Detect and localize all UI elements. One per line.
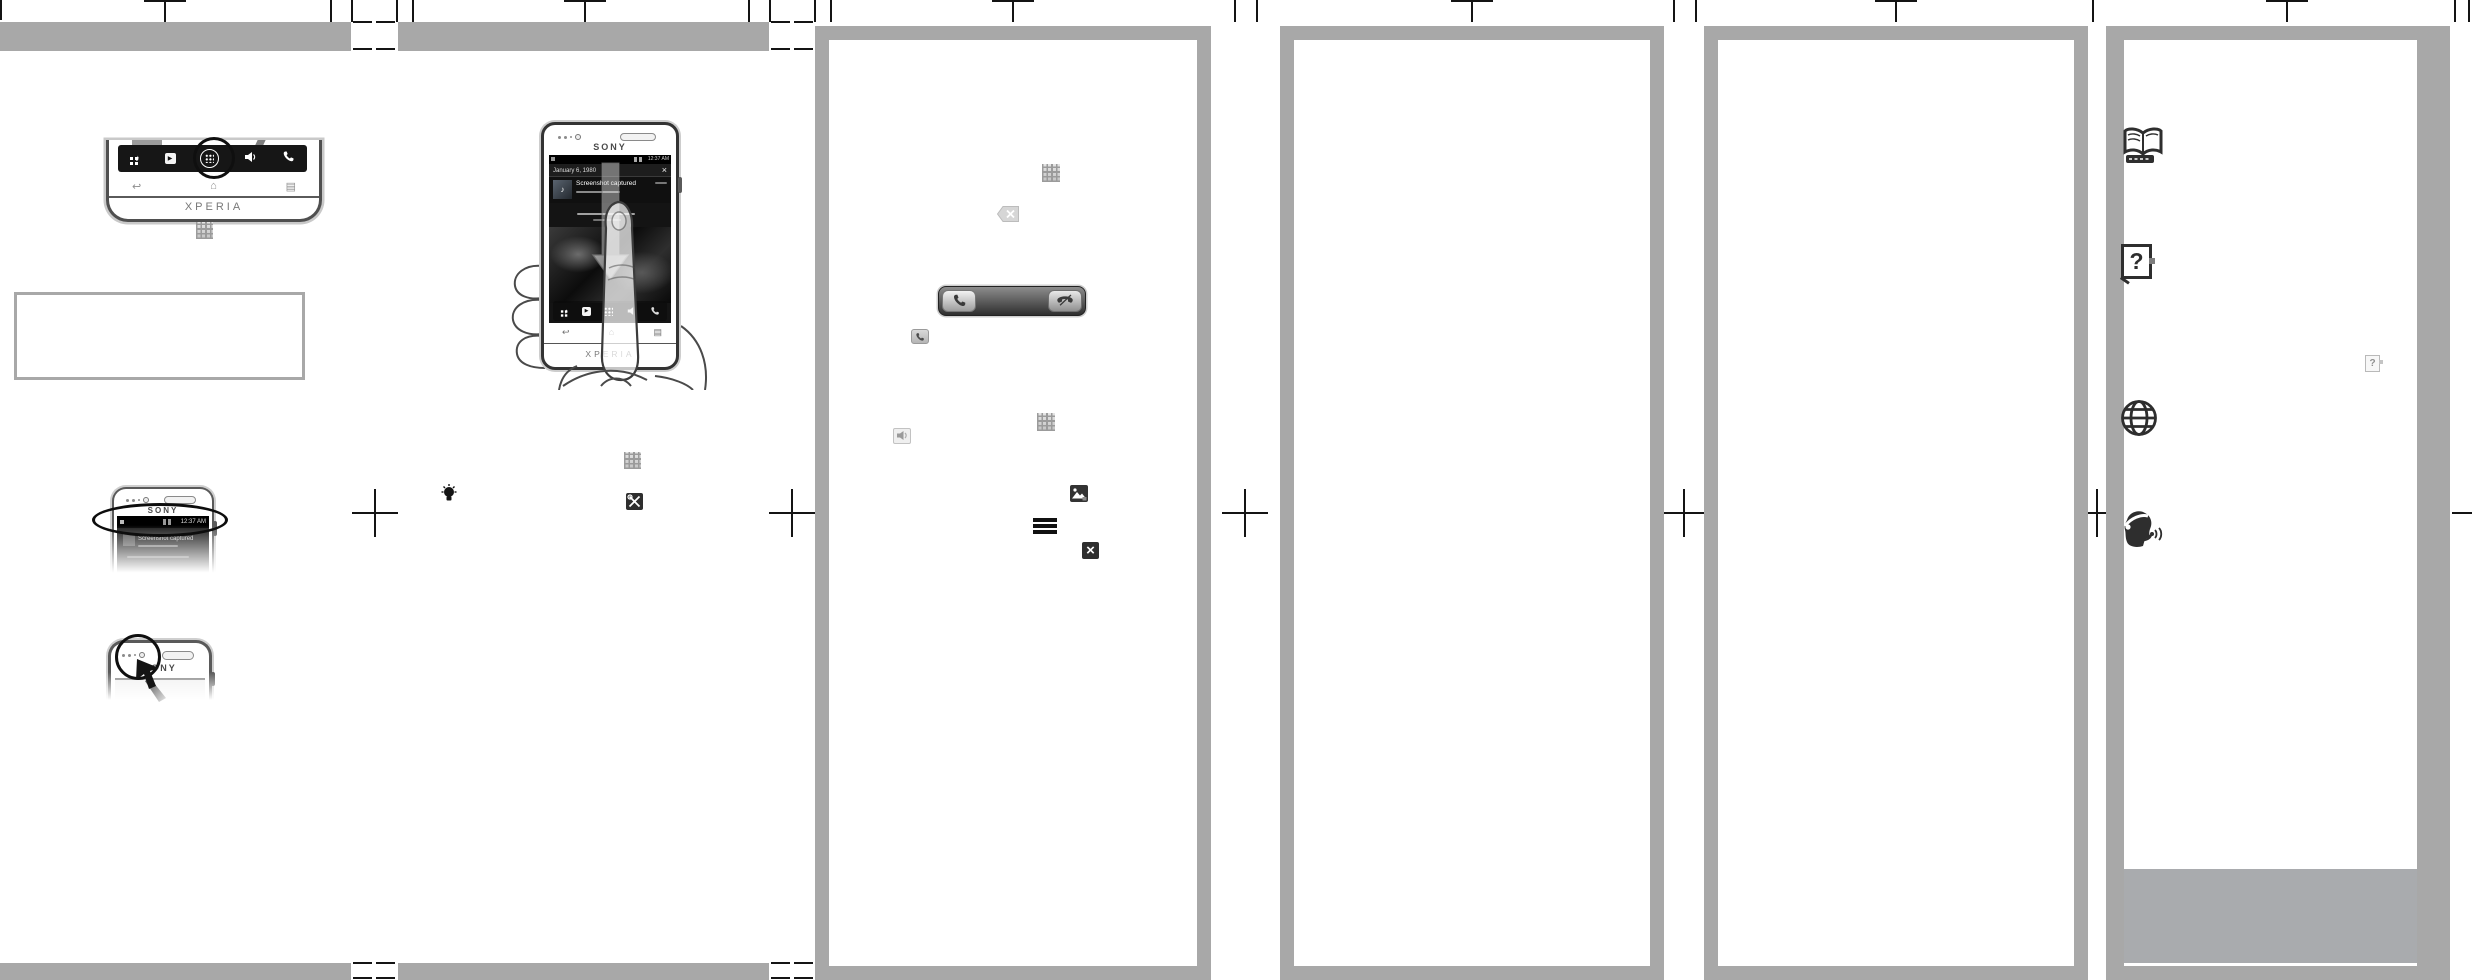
panel1-bottom-bar — [0, 963, 351, 980]
app-grid-icon — [1042, 164, 1060, 182]
open-book-icon — [2122, 126, 2164, 166]
lightbulb-icon — [440, 484, 458, 504]
app-grid-icon — [624, 452, 641, 469]
panel-3 — [815, 26, 1211, 980]
back-key-icon: ↩ — [132, 180, 141, 193]
panel2-top-bar — [398, 22, 769, 51]
speaker-icon — [893, 428, 911, 444]
keyboard-dismiss-icon — [997, 206, 1019, 222]
dragging-finger — [505, 118, 710, 390]
status-bar-highlight-ellipse — [92, 503, 228, 537]
phone-statusbar-illustration: SONY 12:37 AM Screenshot captured — [104, 487, 256, 579]
phone-camera-illustration: SONY — [108, 638, 224, 704]
phone-dock-icon — [282, 150, 295, 168]
panel-5 — [1704, 26, 2088, 980]
panel-4 — [1280, 26, 1664, 980]
support-call-icon — [2117, 506, 2163, 552]
speaker-dock-icon — [244, 150, 257, 168]
menu-key-icon: ▤ — [286, 180, 296, 193]
app-grid-icon — [1037, 413, 1055, 431]
home-key-icon: ⌂ — [210, 180, 217, 193]
answer-call-icon — [942, 290, 976, 312]
cursor-arrow-icon — [128, 652, 176, 702]
note-box — [14, 292, 305, 380]
gallery-icon — [1070, 485, 1088, 502]
menu-icon — [1033, 518, 1057, 535]
panel2-bottom-bar — [398, 963, 769, 980]
globe-icon — [2118, 397, 2160, 439]
help-box-icon: ? — [2121, 244, 2152, 279]
panel6-footer-block — [2124, 869, 2417, 963]
reject-call-icon — [1048, 290, 1082, 312]
print-spread-canvas: ♪ ▶ ↩ ⌂ ▤ XPERIA — [0, 0, 2472, 980]
highlight-circle — [193, 137, 235, 179]
app-grid-icon — [196, 222, 213, 239]
panel-6 — [2106, 26, 2450, 980]
xperia-chin-label: XPERIA — [106, 201, 322, 213]
store-icon: ▶ — [165, 153, 176, 164]
media-apps-icon: ♪ — [130, 154, 140, 163]
incoming-call-slider — [938, 286, 1086, 316]
phone-dock-illustration: ♪ ▶ ↩ ⌂ ▤ XPERIA — [106, 140, 322, 222]
call-chip-icon — [911, 329, 929, 344]
settings-tools-icon — [626, 493, 643, 510]
close-icon: × — [1082, 542, 1099, 559]
hand-phone-illustration: SONY 12:37 AM January 6, 1980 × — [505, 118, 710, 390]
panel1-top-bar — [0, 22, 351, 51]
mini-help-icon: ? — [2365, 355, 2380, 372]
